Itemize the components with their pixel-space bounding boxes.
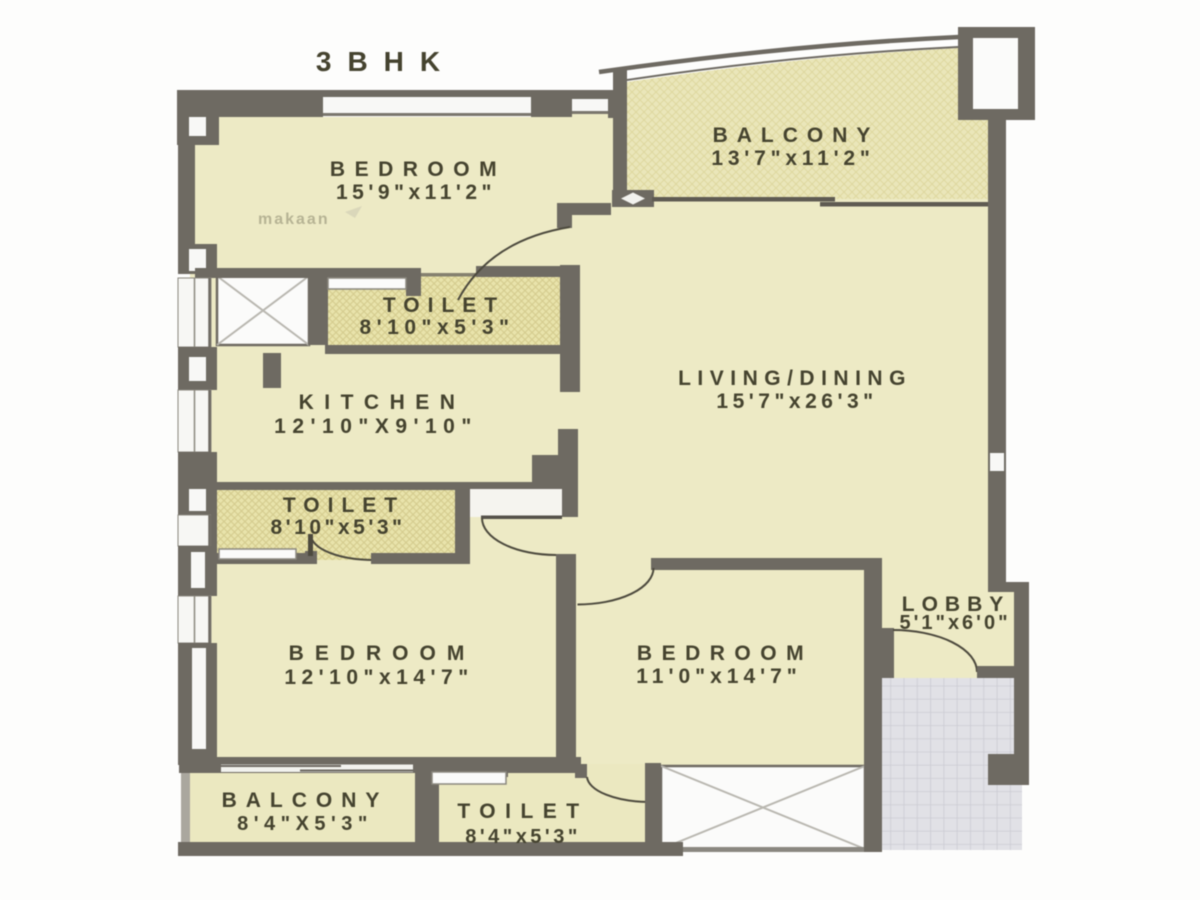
svg-text:BEDROOM: BEDROOM	[637, 642, 813, 665]
svg-text:BALCONY: BALCONY	[713, 124, 880, 147]
svg-text:12'10"X9'10": 12'10"X9'10"	[274, 415, 478, 438]
svg-text:TOILET: TOILET	[283, 494, 405, 517]
svg-text:12'10"x14'7": 12'10"x14'7"	[284, 666, 473, 689]
svg-text:15'7"x26'3": 15'7"x26'3"	[716, 390, 877, 413]
svg-text:LIVING/DINING: LIVING/DINING	[678, 367, 912, 390]
svg-text:11'0"x14'7": 11'0"x14'7"	[636, 665, 802, 688]
svg-text:BALCONY: BALCONY	[222, 789, 389, 812]
svg-text:13'7"x11'2": 13'7"x11'2"	[711, 147, 874, 170]
svg-text:makaan: makaan	[258, 211, 330, 228]
svg-text:TOILET: TOILET	[457, 800, 588, 823]
svg-text:8'4"x5'3": 8'4"x5'3"	[465, 826, 581, 848]
svg-text:5'1"x6'0": 5'1"x6'0"	[899, 612, 1010, 634]
svg-text:BEDROOM: BEDROOM	[330, 158, 506, 181]
svg-text:TOILET: TOILET	[383, 294, 505, 317]
svg-text:BEDROOM: BEDROOM	[289, 642, 476, 665]
svg-text:8'10"x5'3": 8'10"x5'3"	[360, 316, 515, 339]
svg-text:KITCHEN: KITCHEN	[299, 391, 466, 414]
svg-text:15'9"x11'2": 15'9"x11'2"	[336, 181, 496, 204]
svg-text:8'4"X5'3": 8'4"X5'3"	[237, 813, 373, 835]
svg-text:3BHK: 3BHK	[316, 46, 456, 77]
svg-text:8'10"x5'3": 8'10"x5'3"	[271, 516, 406, 539]
